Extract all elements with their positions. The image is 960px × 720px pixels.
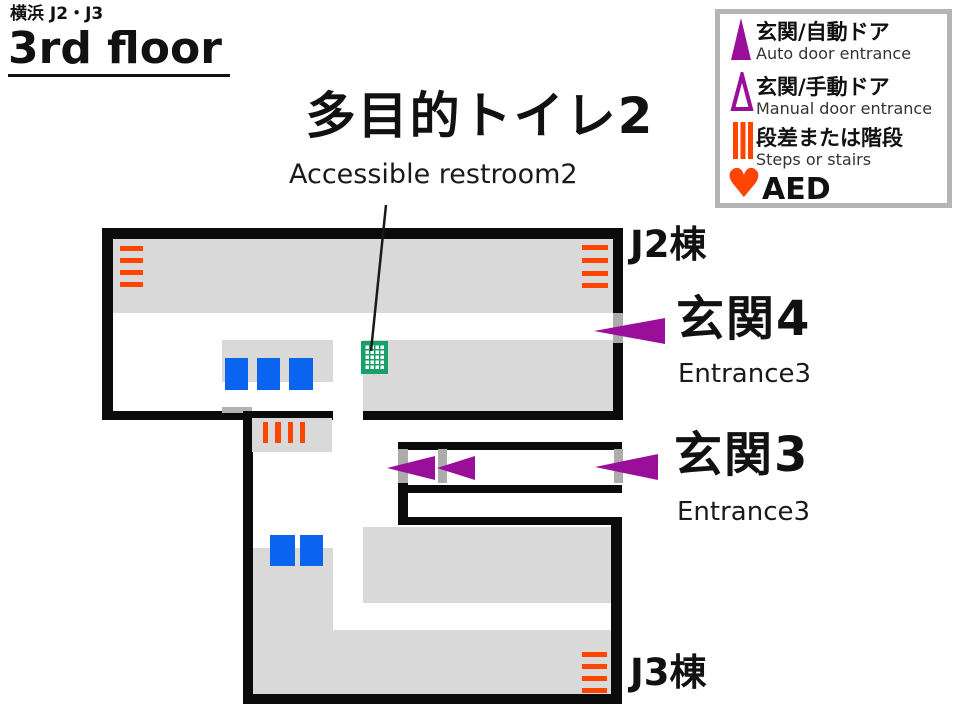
- blue-facility-marker: [225, 358, 248, 390]
- legend-steps-sublabel: Steps or stairs: [756, 152, 871, 168]
- entrance4-arrow-icon: [594, 318, 665, 344]
- bridge-bottom-wall: [398, 485, 622, 493]
- steps-icon: [300, 422, 305, 443]
- steps-icon: [582, 258, 608, 263]
- j2-wall-gap: [333, 411, 363, 421]
- j3-upper-room-block: [363, 527, 611, 603]
- steps-icon: [582, 283, 608, 288]
- steps-icon: [120, 282, 143, 287]
- steps-icon: [582, 676, 607, 681]
- entrance3-arrow-icon: [595, 454, 658, 480]
- j2-lower-room-block: [363, 340, 613, 411]
- page-title: 3rd floor: [8, 26, 230, 77]
- restroom-callout-subtitle: Accessible restroom2: [289, 161, 578, 189]
- j3-left-wall: [243, 411, 253, 704]
- blue-facility-marker: [289, 358, 313, 390]
- j3-top-wall: [398, 517, 615, 525]
- j3-bottom-wall: [243, 694, 622, 704]
- steps-icon: [120, 246, 143, 251]
- legend-aed-label: AED: [762, 172, 831, 207]
- accessible-restroom-icon: [361, 341, 388, 374]
- restroom-callout-title: 多目的トイレ2: [280, 90, 680, 143]
- steps-icon: [582, 271, 608, 276]
- restroom-grid-pattern: [364, 344, 385, 370]
- steps-icon: [582, 652, 607, 657]
- entrance3-sublabel: Entrance3: [677, 499, 810, 526]
- entrance4-label: 玄関4: [676, 294, 811, 344]
- floor-map-page: 横浜 J2・J3 3rd floor 玄関/自動ドア Auto door ent…: [0, 0, 960, 720]
- entrance3-label: 玄関3: [674, 430, 809, 480]
- steps-icon: [120, 258, 143, 263]
- j2-building-label: J2棟: [630, 226, 707, 265]
- auto-door-triangle-icon: [731, 18, 751, 60]
- blue-facility-marker: [300, 535, 323, 566]
- steps-icon: [733, 122, 753, 159]
- j3-right-wall: [611, 517, 622, 704]
- legend-manual-door-label: 玄関/手動ドア: [756, 77, 890, 98]
- steps-icon: [288, 422, 293, 443]
- legend-steps-label: 段差または階段: [756, 128, 903, 149]
- auto-door-arrow-icon: [387, 456, 435, 480]
- legend-auto-door-label: 玄関/自動ドア: [756, 22, 890, 43]
- steps-icon: [263, 422, 268, 443]
- entrance4-sublabel: Entrance3: [678, 361, 811, 388]
- steps-icon: [582, 688, 607, 693]
- steps-icon: [582, 245, 608, 250]
- blue-facility-marker: [257, 358, 280, 390]
- steps-icon: [275, 422, 281, 443]
- auto-door-arrow-icon: [437, 456, 475, 480]
- steps-icon: [120, 270, 143, 275]
- legend-auto-door-sublabel: Auto door entrance: [756, 46, 911, 62]
- blue-facility-marker: [270, 535, 295, 566]
- aed-heart-icon: ♥: [726, 164, 762, 204]
- j3-building-label: J3棟: [630, 654, 707, 693]
- bridge-top-wall: [398, 442, 622, 450]
- j3-lower-room-block: [253, 630, 611, 694]
- steps-icon: [582, 664, 607, 669]
- area-label: 横浜 J2・J3: [10, 6, 103, 24]
- j2-upper-room-band: [113, 239, 613, 313]
- legend-manual-door-sublabel: Manual door entrance: [756, 101, 932, 117]
- manual-door-triangle-icon: [730, 72, 754, 112]
- legend-box: 玄関/自動ドア Auto door entrance 玄関/手動ドア Manua…: [715, 9, 952, 208]
